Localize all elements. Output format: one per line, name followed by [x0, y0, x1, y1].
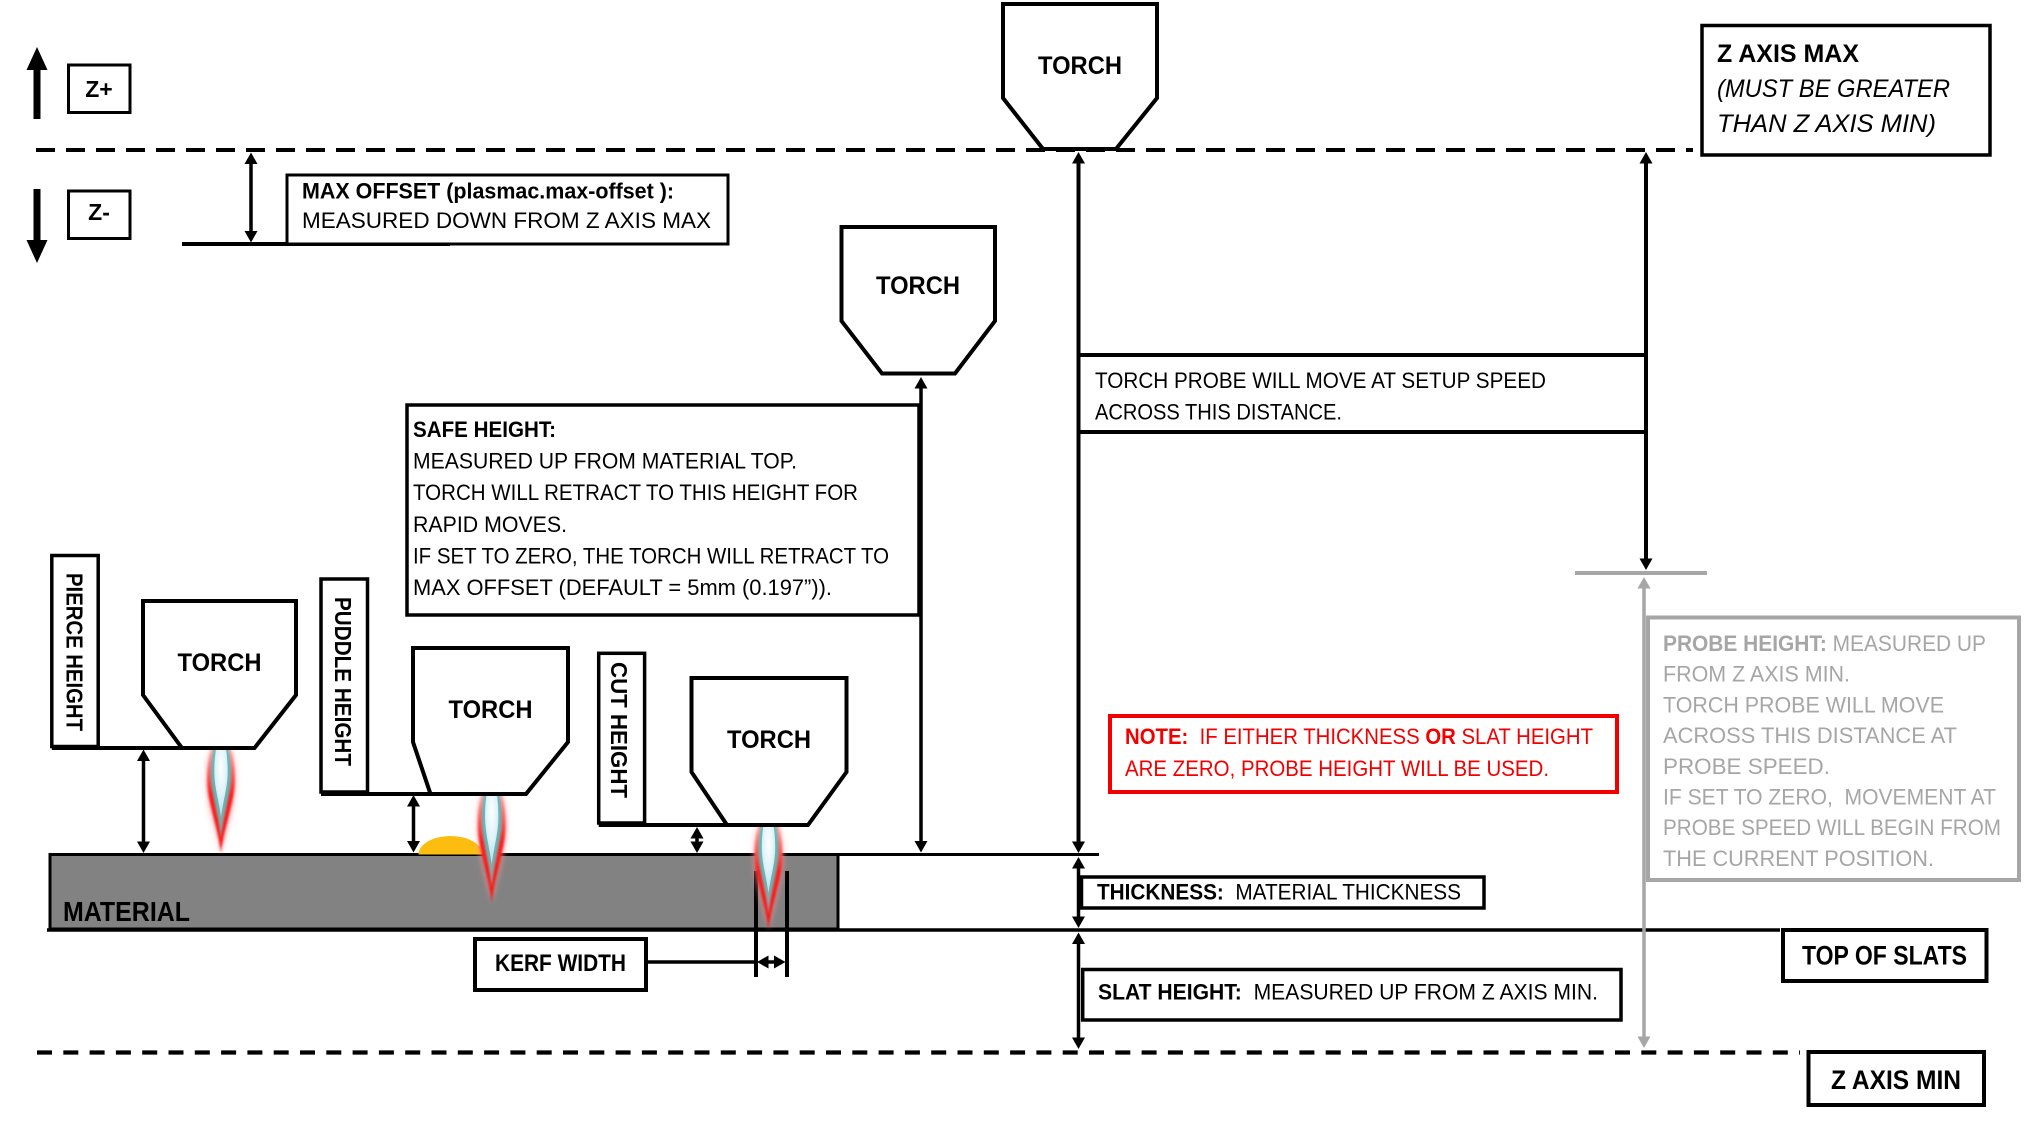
svg-text:TORCH: TORCH — [1038, 52, 1122, 80]
svg-text:IF SET TO ZERO, THE TORCH WILL: IF SET TO ZERO, THE TORCH WILL RETRACT T… — [413, 543, 889, 568]
svg-text:TOP OF SLATS: TOP OF SLATS — [1802, 941, 1967, 971]
svg-text:PROBE SPEED WILL BEGIN FROM: PROBE SPEED WILL BEGIN FROM — [1663, 815, 2001, 840]
svg-text:MAX OFFSET (plasmac.max-offset: MAX OFFSET (plasmac.max-offset ): — [302, 179, 674, 204]
svg-text:TORCH: TORCH — [727, 726, 811, 754]
svg-text:MEASURED UP FROM MATERIAL TOP.: MEASURED UP FROM MATERIAL TOP. — [413, 449, 797, 474]
svg-text:THICKNESS: MATERIAL THICKNESS: THICKNESS: MATERIAL THICKNESS — [1097, 880, 1461, 905]
svg-text:THAN Z AXIS MIN): THAN Z AXIS MIN) — [1717, 110, 1936, 138]
svg-text:MATERIAL: MATERIAL — [63, 896, 190, 927]
svg-text:TORCH PROBE WILL MOVE: TORCH PROBE WILL MOVE — [1663, 692, 1944, 717]
svg-text:RAPID MOVES.: RAPID MOVES. — [413, 512, 567, 537]
svg-text:IF SET TO ZERO, MOVEMENT AT: IF SET TO ZERO, MOVEMENT AT — [1663, 785, 1996, 810]
svg-text:ARE ZERO, PROBE HEIGHT WILL BE: ARE ZERO, PROBE HEIGHT WILL BE USED. — [1125, 756, 1549, 781]
svg-text:PROBE SPEED.: PROBE SPEED. — [1663, 754, 1830, 779]
svg-text:TORCH PROBE WILL MOVE AT SETUP: TORCH PROBE WILL MOVE AT SETUP SPEED — [1095, 368, 1546, 393]
svg-text:Z AXIS MIN: Z AXIS MIN — [1831, 1065, 1961, 1095]
svg-text:(MUST BE GREATER: (MUST BE GREATER — [1717, 75, 1950, 103]
svg-text:PIERCE HEIGHT: PIERCE HEIGHT — [61, 573, 87, 731]
svg-text:SAFE HEIGHT:: SAFE HEIGHT: — [413, 417, 556, 442]
svg-text:ACROSS THIS DISTANCE AT: ACROSS THIS DISTANCE AT — [1663, 723, 1957, 748]
svg-text:TORCH: TORCH — [876, 272, 960, 300]
svg-text:Z AXIS MAX: Z AXIS MAX — [1717, 40, 1859, 68]
svg-text:Z-: Z- — [88, 199, 110, 225]
svg-text:TORCH WILL RETRACT TO THIS HEI: TORCH WILL RETRACT TO THIS HEIGHT FOR — [413, 480, 858, 505]
svg-text:MAX OFFSET (DEFAULT = 5mm (0.1: MAX OFFSET (DEFAULT = 5mm (0.197”)). — [413, 575, 832, 600]
svg-text:TORCH: TORCH — [449, 696, 533, 724]
svg-text:CUT HEIGHT: CUT HEIGHT — [606, 662, 632, 798]
svg-text:NOTE: IF EITHER THICKNESS OR: NOTE: IF EITHER THICKNESS OR SLAT HEIGHT — [1125, 724, 1593, 749]
svg-text:ACROSS THIS DISTANCE.: ACROSS THIS DISTANCE. — [1095, 400, 1342, 425]
svg-text:PROBE HEIGHT: MEASURED UP: PROBE HEIGHT: MEASURED UP — [1663, 631, 1986, 656]
svg-text:KERF WIDTH: KERF WIDTH — [495, 950, 626, 977]
svg-text:Z+: Z+ — [85, 76, 112, 102]
svg-text:SLAT HEIGHT: MEASURED UP FROM: SLAT HEIGHT: MEASURED UP FROM Z AXIS MIN… — [1098, 980, 1598, 1005]
svg-text:PUDDLE HEIGHT: PUDDLE HEIGHT — [330, 597, 356, 766]
svg-text:THE CURRENT POSITION.: THE CURRENT POSITION. — [1663, 846, 1934, 871]
svg-text:MEASURED DOWN FROM Z AXIS MAX: MEASURED DOWN FROM Z AXIS MAX — [302, 208, 711, 233]
svg-text:TORCH: TORCH — [178, 649, 262, 677]
svg-text:FROM Z AXIS MIN.: FROM Z AXIS MIN. — [1663, 662, 1850, 687]
